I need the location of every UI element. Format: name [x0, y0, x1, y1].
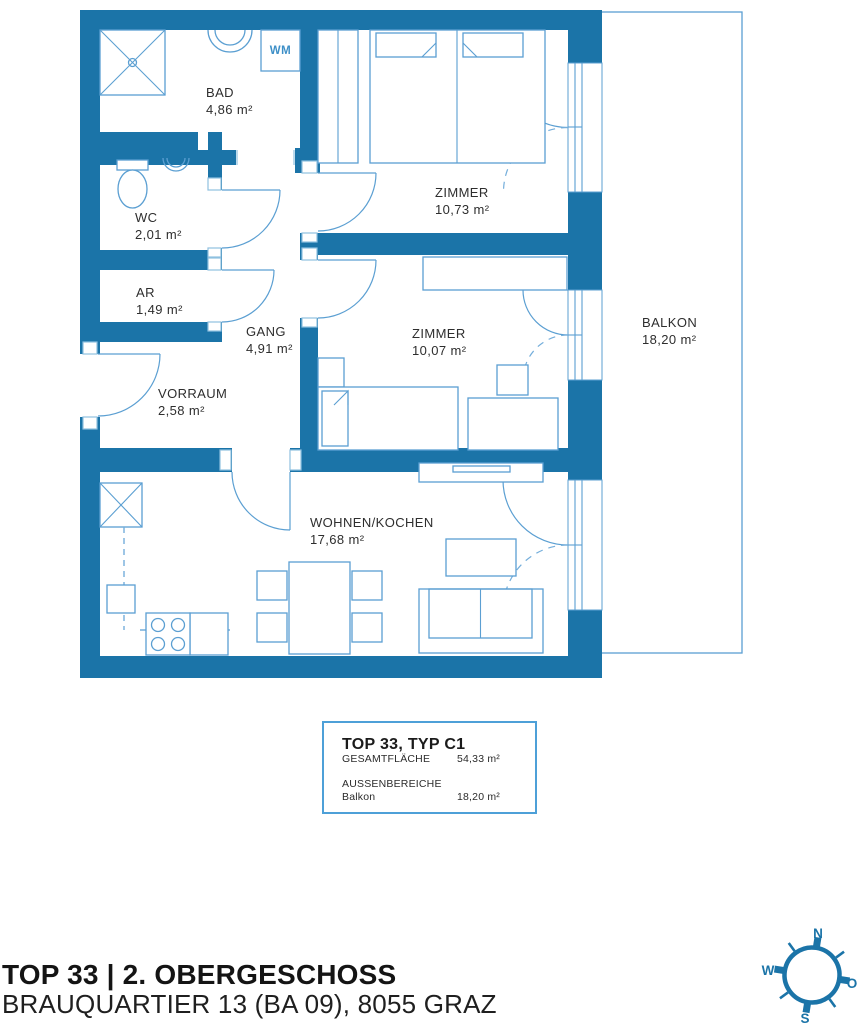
room-label-ar: AR: [136, 285, 155, 300]
desk-chair: [497, 365, 528, 395]
room-label-zimmer2: ZIMMER: [412, 326, 466, 341]
floor-plan-page: WM: [0, 0, 858, 1024]
compass-label-west: W: [762, 963, 775, 978]
floor-plan-svg: WM: [0, 0, 858, 1024]
room-label-gang: GANG: [246, 324, 286, 339]
room-area-balkon: 18,20 m²: [642, 332, 697, 347]
footer-subtitle: BRAUQUARTIER 13 (BA 09), 8055 GRAZ: [2, 989, 497, 1019]
wardrobe-zimmer1: [318, 30, 358, 163]
room-label-bad: BAD: [206, 85, 234, 100]
compass-tick-west: [774, 966, 784, 974]
room-area-wc: 2,01 m²: [135, 227, 182, 242]
stove: [146, 613, 190, 655]
sofa: [419, 589, 543, 653]
toilet: [117, 160, 148, 208]
room-label-wc: WC: [135, 210, 157, 225]
compass-label-north: N: [813, 926, 823, 941]
info-outdoor-value: 18,20 m²: [457, 791, 500, 803]
desk: [468, 398, 558, 450]
room-label-zimmer1: ZIMMER: [435, 185, 489, 200]
kitchen-shaft: [100, 483, 142, 527]
shower: [100, 30, 165, 95]
info-outdoor-item: Balkon: [342, 791, 375, 803]
room-area-ar: 1,49 m²: [136, 302, 183, 317]
compass: N W O S: [762, 926, 858, 1024]
footer-title: TOP 33 | 2. OBERGESCHOSS: [2, 959, 396, 990]
compass-circle: [781, 944, 844, 1007]
wardrobe-zimmer2: [423, 257, 567, 290]
room-area-zimmer1: 10,73 m²: [435, 202, 490, 217]
dining-table: [289, 562, 350, 654]
double-bed: [370, 30, 545, 163]
nightstand: [318, 358, 344, 387]
compass-label-south: S: [800, 1011, 809, 1024]
room-label-vorraum: VORRAUM: [158, 386, 227, 401]
footer: TOP 33 | 2. OBERGESCHOSS BRAUQUARTIER 13…: [2, 959, 497, 1019]
info-total-value: 54,33 m²: [457, 753, 500, 765]
washing-machine-label: WM: [270, 45, 291, 57]
room-area-vorraum: 2,58 m²: [158, 403, 205, 418]
room-area-gang: 4,91 m²: [246, 341, 293, 356]
info-outdoor-label: AUSSENBEREICHE: [342, 778, 442, 790]
info-box: TOP 33, TYP C1 GESAMTFLÄCHE 54,33 m² AUS…: [323, 722, 536, 813]
info-box-title: TOP 33, TYP C1: [342, 736, 465, 753]
room-label-balkon: BALKON: [642, 315, 697, 330]
room-area-zimmer2: 10,07 m²: [412, 343, 467, 358]
coffee-table: [446, 539, 516, 576]
info-total-label: GESAMTFLÄCHE: [342, 753, 430, 765]
room-area-wohnen: 17,68 m²: [310, 532, 365, 547]
room-area-bad: 4,86 m²: [206, 102, 253, 117]
single-bed: [318, 387, 458, 450]
tv-sideboard: [419, 463, 543, 482]
compass-label-east: O: [847, 976, 858, 991]
compass-rose: [769, 932, 856, 1019]
washing-machine: WM: [261, 30, 300, 71]
room-label-wohnen: WOHNEN/KOCHEN: [310, 515, 434, 530]
